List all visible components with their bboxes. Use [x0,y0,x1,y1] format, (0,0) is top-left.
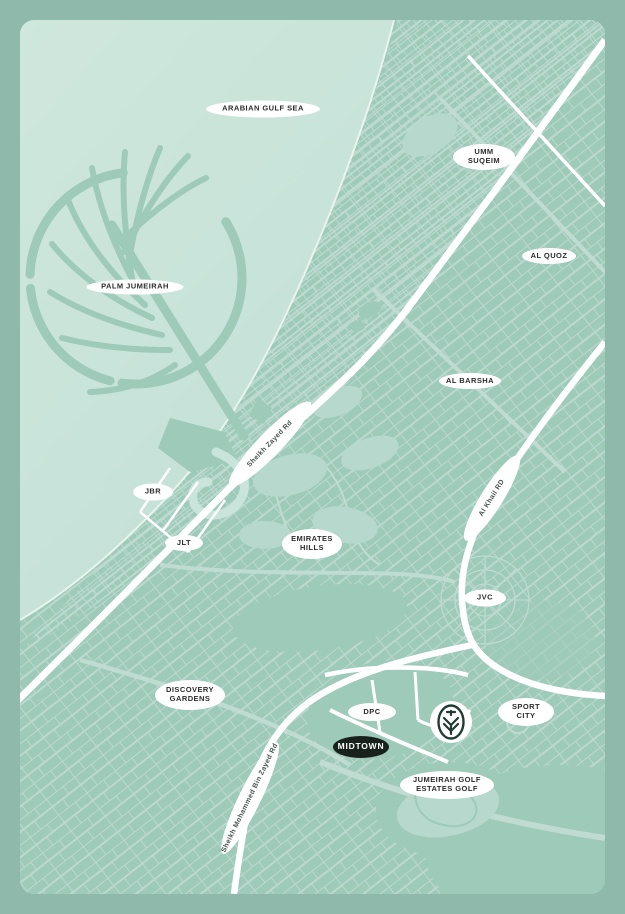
map-canvas: Sheikh Zayed Rd Al Khail RD Sheikh Moham… [20,20,605,894]
brochure-map-page: { "map": { "name": "Dubai location map",… [0,0,625,914]
map-label-discovery-gardens: DISCOVERY GARDENS [155,680,225,710]
map-graphic [20,20,605,894]
map-label-al-barsha: AL BARSHA [439,373,501,389]
map-label-jbr: JBR [133,484,173,501]
map-label-jlt: JLT [165,535,203,551]
map-label-emirates-hills: EMIRATES HILLS [282,529,342,559]
map-label-umm-suqeim: UMM SUQEIM [453,144,515,170]
map-label-palm-jumeirah: PALM JUMEIRAH [87,280,184,295]
map-label-jumeirah-golf-estates: JUMEIRAH GOLF ESTATES GOLF [400,771,494,799]
map-label-jvc: JVC [464,590,506,607]
map-badge-midtown: MIDTOWN [333,736,389,758]
map-label-sport-city: SPORT CITY [498,698,554,726]
map-label-arabian-gulf-sea: ARABIAN GULF SEA [206,101,320,118]
map-label-dpc: DPC [348,703,396,721]
map-label-al-quoz: AL QUOZ [522,248,576,264]
